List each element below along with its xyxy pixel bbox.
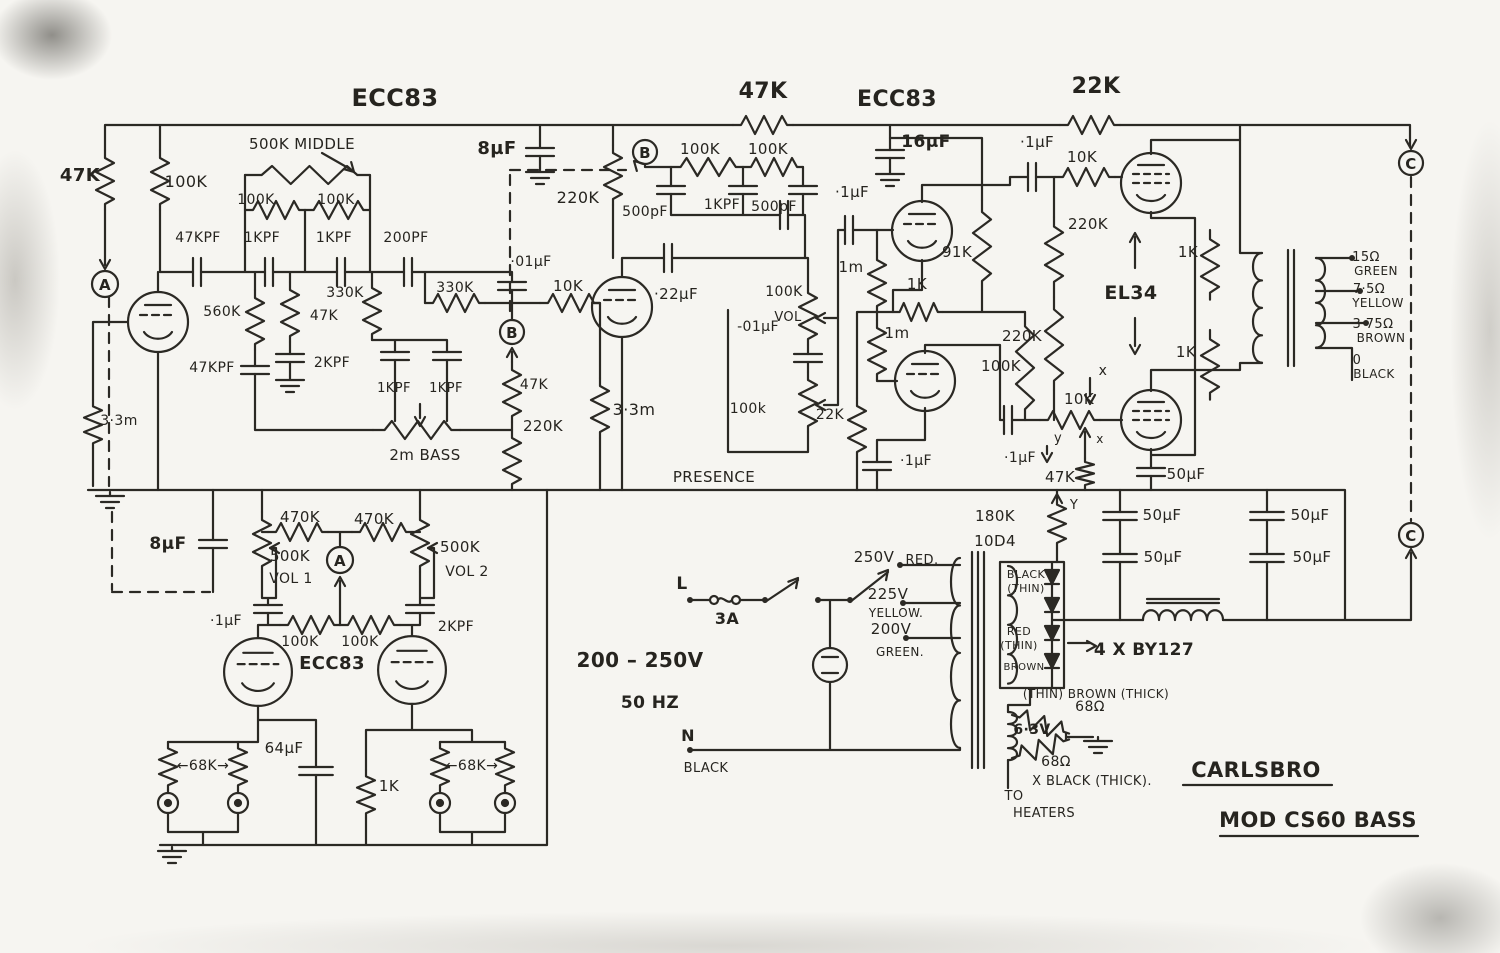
r-3m3-v2: 3·3m — [613, 400, 656, 419]
tap-3-75ohm: 3·75Ω — [1353, 317, 1394, 332]
resistor-100k-g1 — [280, 616, 340, 634]
pot-500k-vol1: 500K — [270, 547, 311, 565]
cap-2kpf-2 — [406, 605, 434, 613]
cap-500pf-1 — [657, 186, 685, 194]
input-jack-4[interactable] — [495, 793, 515, 813]
resistor-47k-top — [733, 116, 793, 134]
tap-0: 0 — [1353, 353, 1362, 368]
diode-by127-1 — [1045, 570, 1059, 584]
resistor-100k-g2 — [340, 616, 400, 634]
label-red-thin: RED — [1007, 625, 1031, 638]
cap-50uf-3 — [1103, 554, 1137, 562]
c-8uf-1: 8µF — [477, 138, 516, 159]
label-by127: 4 X BY127 — [1094, 640, 1194, 660]
tap-green-psu: GREEN. — [876, 645, 924, 659]
c-16uf: 16µF — [901, 132, 950, 152]
output-transformer-primary — [1253, 253, 1262, 363]
r-220k-b: 220K — [557, 188, 600, 207]
indicator-lamp — [813, 648, 847, 682]
label-black-mains: BLACK — [684, 761, 729, 776]
ground-2kpf — [276, 376, 304, 392]
cap-2kpf-1 — [276, 354, 304, 362]
label-x-1: x — [1099, 363, 1108, 379]
c-64uf: 64µF — [265, 739, 304, 757]
label-50hz: 50 HZ — [621, 693, 679, 713]
r-1k-ot-1: 1K — [1178, 243, 1199, 261]
c-50uf-3: 50µF — [1144, 548, 1183, 566]
resistor-220k-pi1 — [1045, 217, 1063, 289]
resistor-220k-b — [604, 145, 622, 205]
tap-yellow: YELLOW — [1351, 296, 1404, 310]
c-2kpf-2: 2KPF — [438, 619, 474, 635]
cap-1kpf-5 — [729, 186, 757, 194]
r-10k-el34-1: 10K — [1067, 148, 1098, 166]
c-1kpf-2: 1KPF — [316, 230, 352, 246]
brand: CARLSBRO — [1191, 758, 1321, 782]
resistor-68k-l1 — [159, 742, 177, 790]
r-220k-b2: 220K — [523, 417, 564, 435]
r-100k-mid-2: 100K — [317, 192, 355, 208]
pot-500k-middle: 500K MIDDLE — [249, 135, 355, 153]
c-200pf: 200PF — [383, 230, 428, 246]
scanned-schematic-page: ECC8347KECC8322K47K100K500K MIDDLE100K10… — [0, 0, 1500, 953]
c-01uf-presence: -01µF — [737, 319, 779, 335]
cap-01uf-b — [498, 282, 526, 290]
c-50uf-2: 50µF — [1143, 506, 1182, 524]
resistor-91k — [973, 200, 991, 290]
r-68k-left: ←68K→ — [177, 758, 229, 774]
cap-1kpf-4 — [433, 352, 461, 360]
indicator-lamp-bars — [822, 657, 838, 673]
node-b-1: B — [639, 144, 651, 162]
c-47kpf-2: 47KPF — [189, 360, 235, 376]
c-22uf: ·22µF — [654, 285, 698, 303]
c-1uf-el34-2: ·1µF — [1004, 450, 1036, 466]
cap-1uf-el34-2 — [1004, 406, 1012, 434]
label-heaters: HEATERS — [1013, 806, 1075, 821]
tap-brown: BROWN — [1357, 331, 1406, 345]
resistor-1m-1 — [868, 252, 886, 312]
r-470k-1: 470K — [280, 508, 321, 526]
c-1uf-cathode: ·1µF — [900, 453, 932, 469]
cap-16uf — [876, 150, 904, 158]
cap-8uf-2 — [199, 540, 227, 548]
resistor-100k-b2 — [743, 158, 803, 176]
resistor-3m3-v2 — [591, 378, 609, 438]
resistor-47k-bias — [1076, 458, 1094, 488]
mains-transformer-primary — [951, 558, 960, 748]
input-jacks — [158, 793, 515, 813]
pot-2m-bass-body[interactable] — [373, 421, 460, 439]
r-1m-2: 1m — [885, 324, 910, 342]
cap-1uf-v3grid — [845, 216, 853, 244]
diode-by127-3 — [1045, 626, 1059, 640]
dot-switch-1 — [762, 597, 768, 603]
c-50uf-1: 50µF — [1167, 465, 1206, 483]
dot-switch-3 — [847, 597, 853, 603]
resistor-1k-ot2 — [1201, 330, 1219, 400]
resistor-330k-h — [425, 294, 485, 312]
c-1kpf-3: 1KPF — [377, 381, 411, 396]
tap-red: RED. — [906, 553, 939, 568]
r-47k-coupling-top: 47K — [739, 79, 788, 104]
fuse-cap-2 — [732, 596, 740, 604]
r-47k-b: 47K — [520, 377, 549, 393]
label-10d4: 10D4 — [974, 532, 1016, 550]
label-mains-v: 200 – 250V — [577, 648, 704, 672]
label-black-thick: X BLACK (THICK). — [1032, 774, 1152, 789]
smoothing-choke — [1143, 599, 1223, 620]
c-01uf-b: ·01µF — [510, 254, 551, 270]
resistor-560k — [246, 290, 264, 350]
label-y-1: y — [1054, 431, 1062, 446]
output-transformer-secondary — [1316, 258, 1325, 348]
pot-100k-presence-body[interactable] — [799, 372, 817, 432]
c-1kpf-5: 1KPF — [704, 197, 740, 213]
pot-vol1: VOL 1 — [269, 571, 313, 587]
r-100k-b2: 100K — [748, 140, 789, 158]
c-1uf-v3-grid: ·1µF — [835, 183, 869, 201]
cap-50uf-4 — [1250, 512, 1284, 520]
resistor-1k-pi — [893, 303, 943, 321]
r-1k-cathode: 1K — [379, 777, 400, 795]
r-68k-right: ←68K→ — [446, 758, 498, 774]
label-thin-2: (THIN) — [1000, 639, 1037, 652]
label-6-3v: 6·3V — [1013, 722, 1050, 738]
resistor-220k-b2 — [503, 430, 521, 490]
cap-47kpf — [193, 258, 201, 286]
cap-1kpf-1 — [265, 258, 273, 286]
r-47k-input: 47K — [60, 165, 101, 186]
label-n: N — [681, 726, 695, 745]
dot-neutral — [687, 747, 693, 753]
wires-top-rails — [88, 125, 1411, 620]
resistor-1m-2 — [868, 320, 886, 380]
pot-vol-label: VOL — [774, 310, 802, 325]
r-220k-pi-2: 220K — [1002, 327, 1043, 345]
c-50uf-4: 50µF — [1291, 506, 1330, 524]
tap-200v: 200V — [871, 620, 912, 638]
r-1k-ot-2: 1K — [1176, 343, 1197, 361]
pot-10k-bias: 10K — [1064, 390, 1095, 408]
valve-el34-2 — [1121, 390, 1181, 450]
diode-by127-4 — [1045, 654, 1059, 668]
valve-ecc83-v4 — [895, 351, 955, 411]
cap-200pf — [404, 258, 412, 286]
r-560k: 560K — [203, 304, 241, 320]
pot-100k-presence: 100k — [730, 401, 767, 417]
pot-500k-vol2: 500K — [440, 538, 481, 556]
r-330k-h: 330K — [436, 280, 474, 296]
resistor-47k-b — [503, 362, 521, 422]
dot-live — [687, 597, 693, 603]
label-presence: PRESENCE — [673, 468, 755, 486]
dot-tap-250v — [897, 562, 903, 568]
input-jack-1[interactable] — [158, 793, 178, 813]
resistor-68k-l2 — [229, 742, 247, 790]
model: MOD CS60 BASS — [1219, 808, 1417, 832]
resistor-y-bias — [1048, 498, 1066, 548]
resistor-1k-cathode — [357, 770, 375, 818]
node-a-1: A — [99, 276, 111, 294]
resistor-22k-nfb — [848, 398, 866, 458]
cap-64uf — [299, 767, 333, 775]
cap-1uf-el34-1 — [1028, 163, 1036, 191]
resistor-100k-b1 — [671, 158, 743, 176]
tap-green: GREEN — [1354, 264, 1398, 278]
r-47k-bias: 47K — [1045, 468, 1076, 486]
c-1kpf-1: 1KPF — [244, 230, 280, 246]
ground-heater-ct — [1084, 737, 1112, 753]
label-el34: EL34 — [1104, 282, 1157, 304]
cap-1kpf-2 — [337, 258, 345, 286]
cap-1uf-vol1 — [254, 605, 282, 613]
node-c-1: C — [1405, 155, 1416, 173]
tap-black: BLACK — [1353, 367, 1395, 381]
fuse-element — [718, 598, 732, 601]
r-100k-mid-1: 100K — [237, 192, 275, 208]
cap-22uf — [664, 244, 672, 272]
pot-500k-middle-body[interactable] — [245, 166, 370, 184]
cap-500pf-2 — [789, 186, 817, 194]
label-l: L — [676, 574, 687, 594]
resistor-10k-el34-1 — [1055, 168, 1115, 186]
label-thin-1: (THIN) — [1007, 582, 1044, 595]
c-500pf-1: 500pF — [622, 204, 668, 220]
cap-1kpf-3 — [381, 352, 409, 360]
node-c-2: C — [1405, 527, 1416, 545]
resistor-330k-v — [363, 280, 381, 340]
tap-yellow-psu: YELLOW. — [868, 606, 923, 620]
node-b-2: B — [506, 324, 518, 342]
fuse-cap-1 — [710, 596, 718, 604]
label-y-2: Y — [1069, 498, 1078, 513]
capacitors — [193, 148, 1284, 775]
dot-switch-2 — [815, 597, 821, 603]
tap-225v: 225V — [868, 585, 909, 603]
label-brown-thin: BROWN — [1003, 662, 1044, 673]
r-330k-v: 330K — [326, 285, 364, 301]
valve-el34-1 — [1121, 153, 1181, 213]
r-22k-nfb: 22K — [816, 407, 845, 423]
r-3m3-input: 3·3m — [100, 413, 138, 429]
cap-47kpf-2 — [241, 366, 269, 374]
cap-8uf-1 — [526, 148, 554, 156]
input-jack-3[interactable] — [430, 793, 450, 813]
ground-lower-rail — [158, 847, 186, 863]
r-180k: 180K — [975, 507, 1016, 525]
resistor-47k-v1 — [281, 282, 299, 342]
label-x-2: x — [1096, 432, 1104, 446]
c-8uf-2: 8µF — [149, 534, 186, 554]
r-220k-pi-1: 220K — [1068, 215, 1109, 233]
r-100k-pi: 100K — [981, 357, 1022, 375]
resistor-1k-ot1 — [1201, 230, 1219, 300]
pot-10k-bias-body[interactable] — [1040, 411, 1100, 429]
c-47kpf: 47KPF — [175, 230, 221, 246]
tap-250v: 250V — [854, 548, 895, 566]
pot-500k-vol2-body[interactable] — [411, 512, 429, 572]
r-100k-g1: 100K — [281, 634, 319, 650]
valve-ecc83-low-right — [378, 636, 446, 704]
r-1k-pi: 1K — [907, 275, 928, 293]
r-1m-1: 1m — [839, 258, 864, 276]
resistor-220k-pi2 — [1045, 297, 1063, 390]
r-10k-v2-grid: 10K — [553, 277, 584, 295]
ground-16uf — [876, 170, 904, 186]
r-100k-v1-anode: 100K — [165, 172, 208, 191]
cap-50uf-2 — [1103, 512, 1137, 520]
r-91k: 91K — [942, 243, 973, 261]
r-22k-top: 22K — [1072, 74, 1121, 99]
c-1kpf-4: 1KPF — [429, 381, 463, 396]
r-100k-b1: 100K — [680, 140, 721, 158]
r-470k-2: 470K — [354, 510, 395, 528]
label-to: TO — [1004, 789, 1024, 804]
pot-2m-bass: 2m BASS — [389, 446, 460, 464]
c-500pf-2: 500pF — [751, 199, 797, 215]
input-jack-2[interactable] — [228, 793, 248, 813]
schematic-canvas: ECC8347KECC8322K47K100K500K MIDDLE100K10… — [0, 0, 1500, 953]
c-2kpf-1: 2KPF — [314, 355, 350, 371]
label-3a: 3A — [715, 609, 740, 628]
title-ecc83-1: ECC83 — [351, 84, 438, 112]
title-ecc83-3: ECC83 — [299, 653, 365, 674]
tap-7-5ohm: 7·5Ω — [1353, 282, 1385, 297]
tap-15ohm: 15Ω — [1352, 250, 1380, 265]
pot-500k-vol1-body[interactable] — [253, 512, 271, 572]
diode-by127-2 — [1045, 598, 1059, 612]
title-ecc83-2: ECC83 — [857, 87, 937, 112]
r-100k-g2: 100K — [341, 634, 379, 650]
wires-phase-inverter — [857, 138, 1122, 490]
resistor-68k-r2 — [496, 742, 514, 790]
cap-01uf-presence — [794, 354, 822, 362]
label-black-thin: BLACK — [1007, 568, 1046, 581]
r-68ohm-2: 68Ω — [1041, 754, 1071, 770]
c-50uf-5: 50µF — [1293, 548, 1332, 566]
valve-ecc83-v1 — [128, 292, 188, 352]
cap-1uf-cathode — [863, 462, 891, 470]
pot-vol2: VOL 2 — [445, 564, 489, 580]
r-68ohm-1: 68Ω — [1075, 699, 1105, 715]
resistor-22k-top — [1060, 116, 1120, 134]
cap-50uf-5 — [1250, 554, 1284, 562]
pot-100k-vol-upper: 100K — [765, 284, 803, 300]
r-47k-v1: 47K — [310, 308, 339, 324]
c-1uf-el34-1: ·1µF — [1020, 133, 1054, 151]
ground-bus-left — [96, 492, 124, 508]
c-1uf-vol1: ·1µF — [210, 613, 242, 629]
cap-50uf-1 — [1137, 468, 1165, 476]
node-a-2: A — [334, 552, 346, 570]
